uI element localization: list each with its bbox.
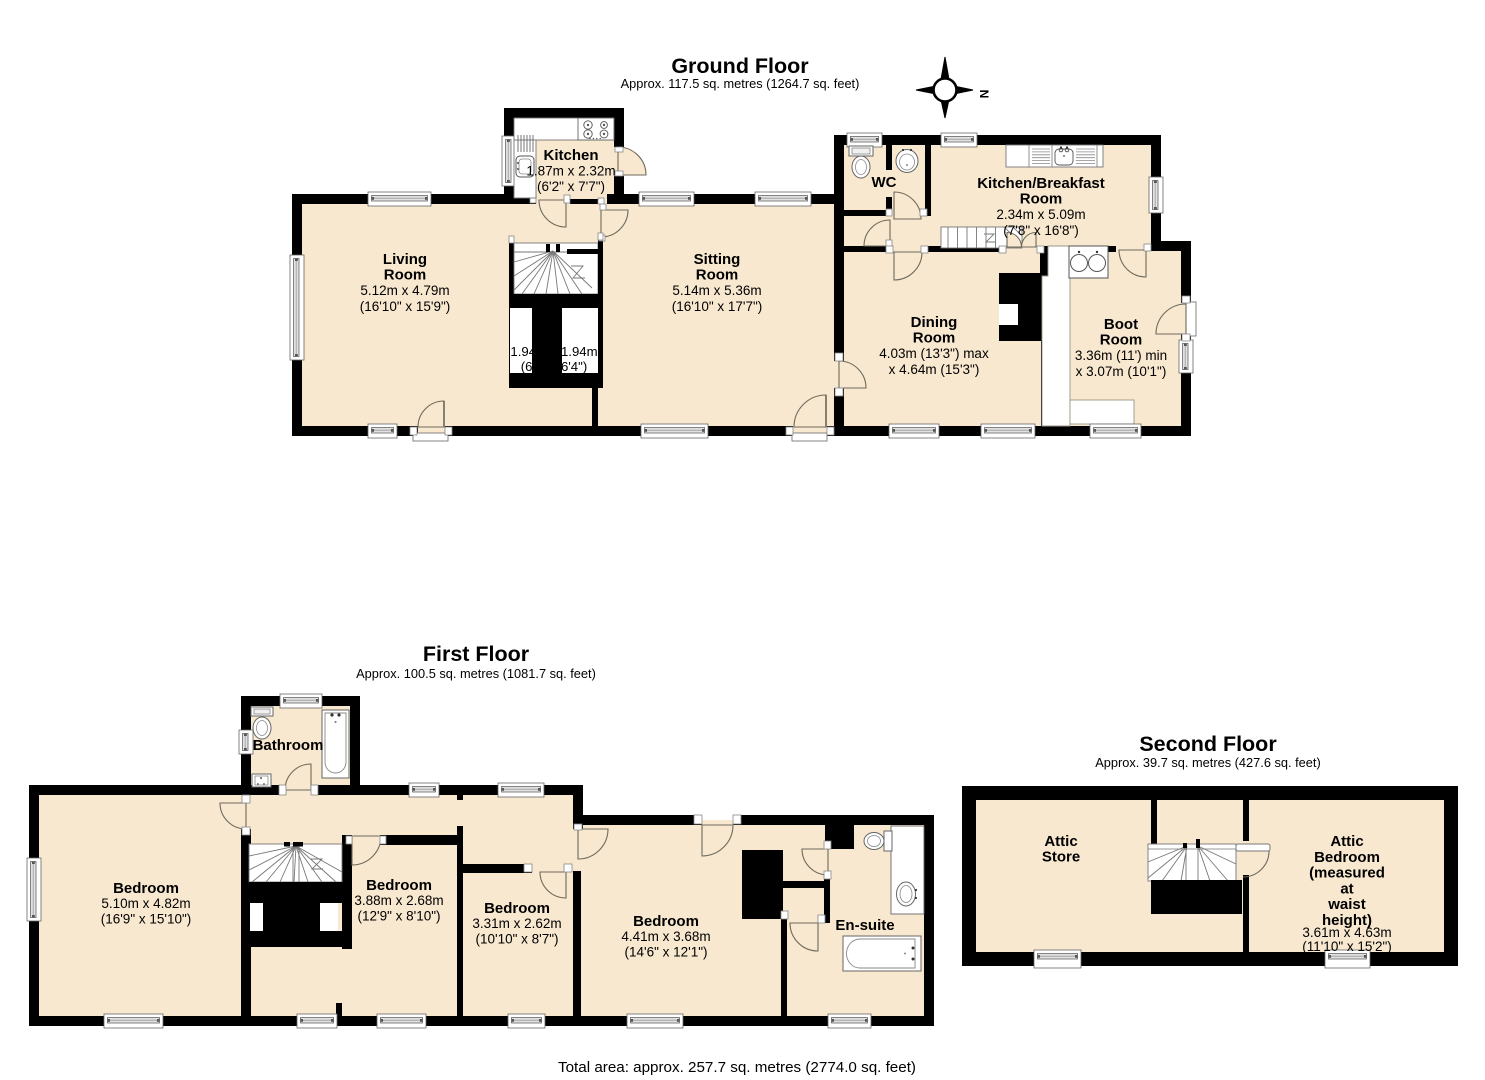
svg-text:x 3.07m (10'1"): x 3.07m (10'1") (1076, 364, 1167, 379)
svg-text:(12'9" x 8'10"): (12'9" x 8'10") (357, 908, 440, 923)
svg-text:En-suite: En-suite (835, 917, 894, 934)
svg-text:N: N (977, 90, 991, 99)
svg-text:(16'10" x 17'7"): (16'10" x 17'7") (672, 299, 763, 314)
svg-text:(14'6" x 12'1"): (14'6" x 12'1") (624, 944, 707, 959)
svg-text:Total area: approx. 257.7 sq.: Total area: approx. 257.7 sq. metres (27… (558, 1059, 916, 1076)
svg-text:x 4.64m (15'3"): x 4.64m (15'3") (889, 362, 980, 377)
svg-text:Sitting: Sitting (694, 251, 741, 268)
svg-text:(6'2" x 7'7"): (6'2" x 7'7") (537, 179, 605, 194)
svg-text:Bedroom: Bedroom (113, 880, 179, 897)
svg-text:Room: Room (913, 330, 956, 347)
svg-text:Approx. 39.7 sq. metres (427.6: Approx. 39.7 sq. metres (427.6 sq. feet) (1095, 755, 1320, 770)
svg-text:Attic: Attic (1330, 833, 1363, 850)
svg-text:Approx. 117.5 sq. metres (1264: Approx. 117.5 sq. metres (1264.7 sq. fee… (621, 76, 860, 91)
svg-text:Attic: Attic (1044, 833, 1077, 850)
svg-text:3.31m x 2.62m: 3.31m x 2.62m (472, 916, 561, 931)
svg-text:Room: Room (1020, 191, 1063, 208)
svg-text:Ground Floor: Ground Floor (671, 54, 809, 78)
svg-text:5.12m x 4.79m: 5.12m x 4.79m (360, 283, 449, 298)
svg-text:Bedroom: Bedroom (633, 913, 699, 930)
svg-text:Kitchen/Breakfast: Kitchen/Breakfast (977, 175, 1105, 192)
svg-text:3.36m (11') min: 3.36m (11') min (1075, 348, 1167, 363)
svg-text:Bedroom: Bedroom (1314, 849, 1380, 866)
svg-text:(measured: (measured (1309, 865, 1385, 882)
svg-text:Bedroom: Bedroom (366, 877, 432, 894)
svg-text:5.14m x 5.36m: 5.14m x 5.36m (672, 283, 761, 298)
svg-text:waist: waist (1327, 896, 1366, 913)
svg-text:Dining: Dining (911, 314, 958, 331)
svg-text:Living: Living (383, 251, 427, 268)
svg-text:Boot: Boot (1104, 316, 1138, 333)
svg-text:Room: Room (696, 267, 739, 284)
svg-text:(16'9" x 15'10"): (16'9" x 15'10") (101, 911, 192, 926)
svg-text:1.87m x 2.32m: 1.87m x 2.32m (526, 164, 615, 179)
svg-text:Store: Store (1042, 849, 1080, 866)
svg-text:2.34m x 5.09m: 2.34m x 5.09m (996, 207, 1085, 222)
svg-text:(16'10" x 15'9"): (16'10" x 15'9") (360, 299, 451, 314)
svg-text:(10'10" x 8'7"): (10'10" x 8'7") (475, 931, 558, 946)
svg-text:WC: WC (872, 174, 897, 191)
svg-text:5.10m x 4.82m: 5.10m x 4.82m (101, 896, 190, 911)
svg-text:3.88m x 2.68m: 3.88m x 2.68m (354, 893, 443, 908)
svg-text:(11'10" x 15'2"): (11'10" x 15'2") (1302, 939, 1392, 954)
svg-text:at: at (1340, 880, 1353, 897)
svg-text:(7'8" x 16'8"): (7'8" x 16'8") (1003, 223, 1079, 238)
svg-text:Room: Room (384, 267, 427, 284)
svg-text:3.61m x 4.63m: 3.61m x 4.63m (1302, 925, 1391, 940)
svg-text:4.41m x 3.68m: 4.41m x 3.68m (621, 929, 710, 944)
svg-text:Second Floor: Second Floor (1139, 732, 1277, 756)
svg-text:Approx. 100.5 sq. metres (1081: Approx. 100.5 sq. metres (1081.7 sq. fee… (356, 666, 596, 681)
svg-text:4.03m (13'3") max: 4.03m (13'3") max (879, 346, 989, 361)
svg-text:Bathroom: Bathroom (253, 737, 324, 754)
svg-text:First Floor: First Floor (423, 642, 530, 666)
svg-text:Room: Room (1100, 332, 1143, 349)
svg-text:Bedroom: Bedroom (484, 900, 550, 917)
svg-text:Kitchen: Kitchen (543, 147, 598, 164)
